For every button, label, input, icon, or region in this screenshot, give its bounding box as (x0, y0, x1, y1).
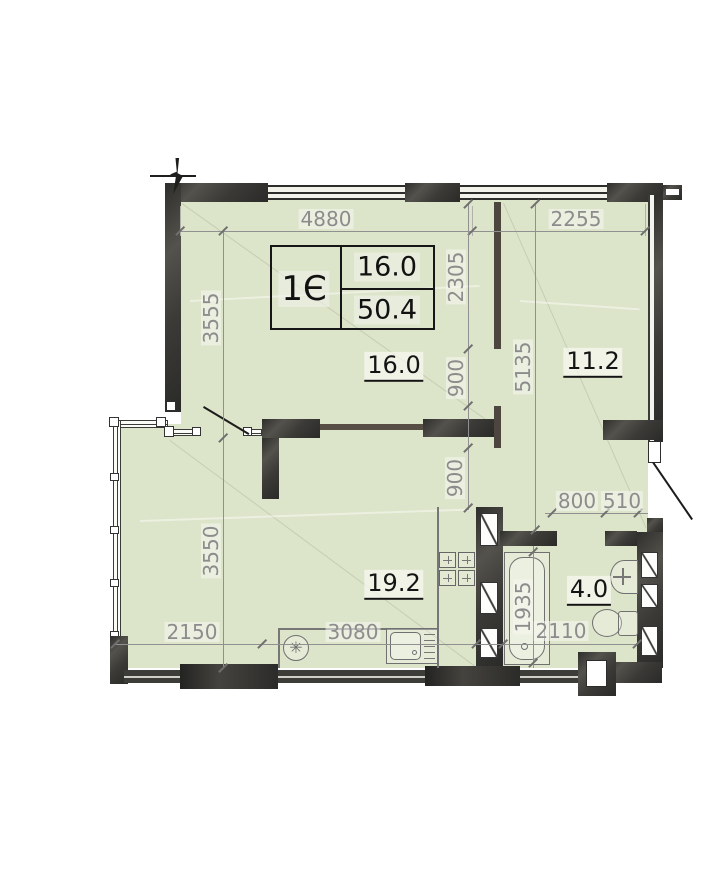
wall-top-end-slot (666, 189, 679, 195)
dim-line-5135 (535, 203, 536, 532)
washbasin-cross-v (622, 568, 624, 585)
dim-1935: 1935 (513, 580, 533, 635)
dim-5135: 5135 (513, 340, 533, 395)
glazing-post (110, 473, 119, 481)
wall-left (165, 183, 181, 412)
shaft-cell (641, 552, 658, 578)
room-label-hall: 11.2 (563, 348, 622, 378)
bath-top-wall-right (605, 531, 637, 546)
wall-bottom-sill-block (180, 664, 278, 689)
window-top-2 (460, 185, 607, 200)
shaft-cell (641, 584, 658, 608)
entrance-door-leaf (648, 441, 661, 463)
kitchen-counter-edge-left (278, 628, 280, 668)
wall-top-pier-2 (405, 183, 460, 202)
title-block-area-top: 16.0 (354, 253, 420, 282)
toilet-tank (618, 611, 638, 636)
wall-interior-a-stub (262, 438, 279, 499)
dim-3080: 3080 (326, 622, 381, 642)
entrance-door-swing (653, 462, 693, 520)
dim-line-left (223, 231, 224, 668)
dim-3555: 3555 (201, 291, 221, 346)
dim-line-top (180, 231, 645, 232)
dim-800: 800 (556, 491, 598, 511)
dim-2305: 2305 (446, 250, 466, 305)
room-label-bath: 4.0 (567, 576, 611, 606)
window-top-1 (268, 185, 405, 200)
kitchen-sink-drain (412, 650, 417, 655)
dim-line-mid (468, 203, 469, 510)
stove-burner (439, 570, 456, 586)
glazing-post (110, 579, 119, 587)
shaft-cell (480, 628, 498, 658)
dim-2110: 2110 (534, 621, 589, 641)
bath-top-wall-left (500, 531, 557, 546)
shaft-cell (480, 513, 498, 546)
wall-interior-b (423, 419, 495, 437)
wall-bottom-band-1 (124, 670, 182, 683)
wall-interior-thin (320, 424, 423, 430)
stove-burner (439, 552, 456, 568)
dim-3550: 3550 (201, 524, 221, 579)
wall-left-end-cap (166, 401, 176, 411)
title-block-area-bottom: 50.4 (354, 296, 420, 325)
glazing-post (164, 426, 174, 437)
dim-900-upper: 900 (446, 357, 466, 399)
shaft-cell (641, 626, 658, 656)
shaft-cell (480, 582, 498, 614)
dim-line-bath (545, 513, 648, 514)
wall-bottom-block-2 (425, 666, 520, 686)
dim-510: 510 (601, 491, 643, 511)
dim-line-bottom (115, 644, 637, 645)
fridge-icon: ✳ (289, 640, 302, 656)
dim-4880: 4880 (299, 209, 354, 229)
wall-bottom-band-2 (278, 670, 425, 683)
kitchen-sink-drainboard (424, 634, 435, 660)
glazing-post (109, 417, 119, 427)
room-label-kitchen: 19.2 (364, 570, 423, 600)
partition-living-hall-lower (494, 406, 501, 448)
wall-interior-a (262, 419, 320, 438)
title-block-unit: 1Є (278, 271, 329, 307)
floor-plan: ✳ 4880 2255 3555 3550 230 (0, 0, 720, 888)
glazing-post (192, 427, 201, 436)
wall-right-outer (654, 195, 663, 442)
glazing-post (110, 526, 119, 534)
title-block-divider-h (340, 288, 433, 290)
stove-burner (458, 552, 475, 568)
partition-living-hall-upper (494, 202, 501, 349)
kitchen-sink-basin (390, 632, 421, 660)
dim-2255: 2255 (549, 209, 604, 229)
room-label-living: 16.0 (364, 352, 423, 382)
stove-burner (458, 570, 475, 586)
dim-2150: 2150 (165, 622, 220, 642)
pier-protrusion-core (586, 660, 607, 687)
dim-900-lower: 900 (445, 457, 465, 499)
wall-entrance-stub (603, 420, 663, 440)
